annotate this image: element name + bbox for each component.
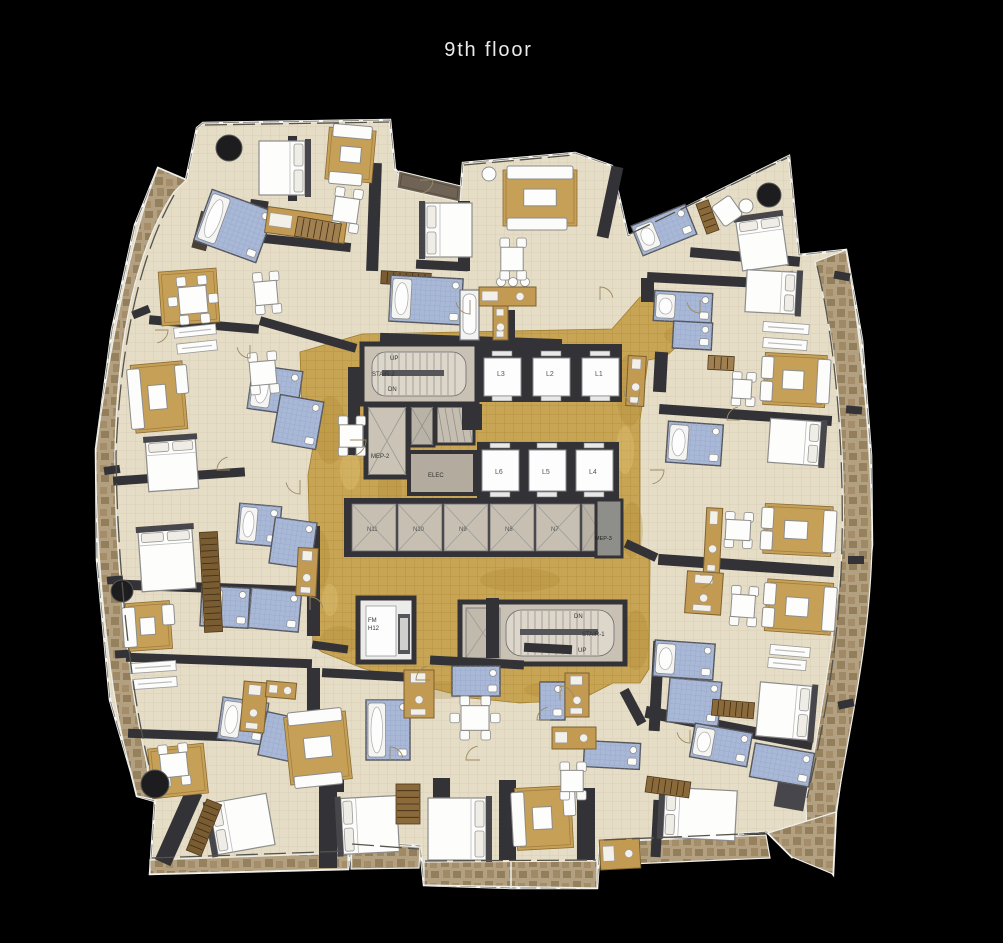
svg-text:H12: H12 [368, 626, 380, 632]
svg-text:FM: FM [368, 618, 377, 624]
svg-text:MEP-2: MEP-2 [371, 454, 390, 460]
svg-text:N10: N10 [413, 527, 425, 533]
svg-text:L3: L3 [497, 371, 505, 378]
svg-text:L5: L5 [542, 469, 550, 476]
svg-text:UP: UP [390, 356, 398, 362]
svg-text:L2: L2 [546, 371, 554, 378]
svg-text:UP: UP [578, 648, 586, 654]
svg-text:L1: L1 [595, 371, 603, 378]
svg-text:N8: N8 [505, 527, 513, 533]
svg-text:DN: DN [388, 387, 397, 393]
svg-text:DN: DN [574, 614, 583, 620]
svg-text:N7: N7 [551, 527, 559, 533]
svg-text:L4: L4 [589, 469, 597, 476]
svg-text:N9: N9 [459, 527, 467, 533]
svg-text:STAIR-1: STAIR-1 [582, 632, 605, 638]
svg-text:N11: N11 [367, 527, 378, 533]
svg-text:L6: L6 [495, 469, 503, 476]
svg-text:ELEC: ELEC [428, 473, 444, 479]
svg-text:MEP-3: MEP-3 [595, 536, 612, 542]
svg-text:STAIR-2: STAIR-2 [372, 372, 395, 378]
